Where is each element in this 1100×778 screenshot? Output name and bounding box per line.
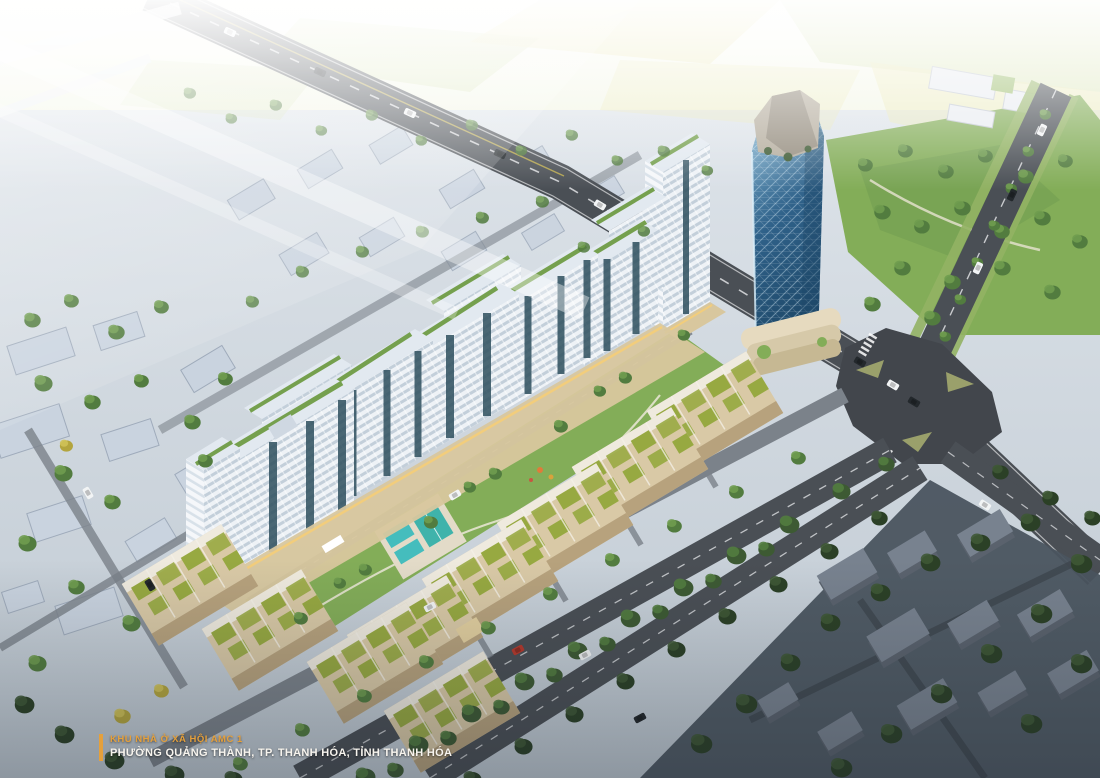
masterplan-scene <box>0 0 1100 778</box>
aerial-rendering: KHU NHÀ Ở XÃ HỘI AMC 1 PHƯỜNG QUẢNG THÀN… <box>0 0 1100 778</box>
project-location: PHƯỜNG QUẢNG THÀNH, TP. THANH HÓA, TỈNH … <box>110 746 452 760</box>
project-caption: KHU NHÀ Ở XÃ HỘI AMC 1 PHƯỜNG QUẢNG THÀN… <box>99 734 452 761</box>
project-name: KHU NHÀ Ở XÃ HỘI AMC 1 <box>110 734 452 746</box>
caption-accent-bar <box>99 734 103 761</box>
